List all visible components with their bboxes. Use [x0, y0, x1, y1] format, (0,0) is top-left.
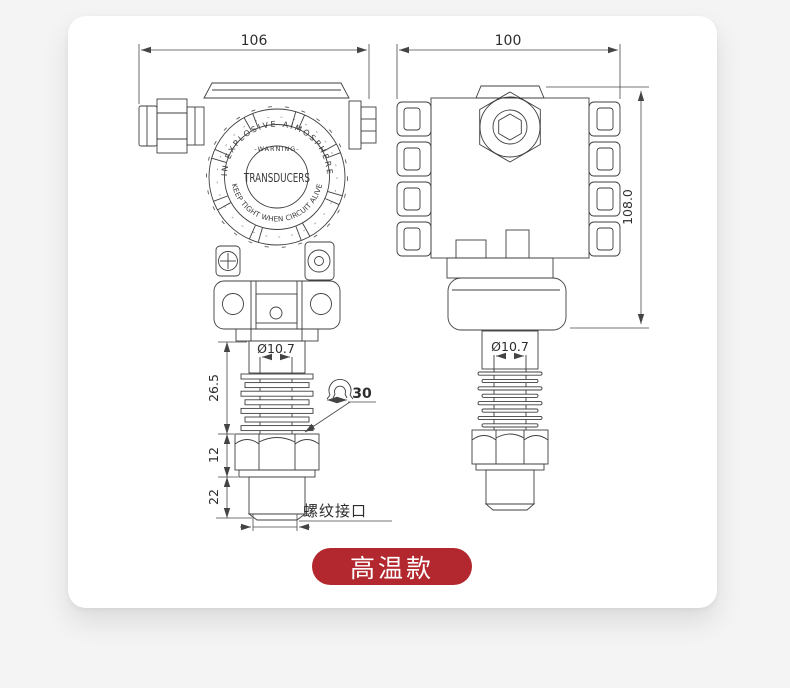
front-hex-dim: 12	[206, 447, 221, 463]
cable-gland	[139, 99, 204, 153]
front-fins-dim: 26.5	[206, 374, 221, 402]
side-height-dim: 108.0	[620, 189, 635, 225]
side-cooling-fins	[478, 372, 542, 427]
flange-ribs-left	[397, 102, 431, 256]
cooling-fins	[241, 374, 313, 431]
face-center-text: TRANSDUCERS	[243, 171, 310, 185]
side-body	[431, 98, 589, 258]
high-temperature-model-badge: 高温款	[312, 548, 472, 585]
hex-width-dim: 30	[352, 386, 372, 402]
side-width-dim: 100	[495, 33, 522, 49]
front-thread-dim: 22	[206, 489, 221, 505]
side-probe-diameter: Ø10.7	[491, 339, 529, 354]
side-thread-connector	[486, 470, 534, 510]
screw-tabs	[216, 242, 334, 280]
side-bracket-block	[447, 258, 566, 330]
flange-ribs-right	[589, 102, 620, 256]
thread-connector	[249, 477, 305, 520]
dimension-labels: 106 100 108.0 26.5 12 22 Ø10.7 Ø10.7 30 …	[206, 33, 635, 520]
wrench-icon	[327, 379, 353, 399]
top-cap	[204, 83, 349, 98]
side-plug	[349, 101, 376, 149]
thread-port-label: 螺纹接口	[303, 502, 367, 520]
hex-plug	[480, 92, 541, 162]
front-probe-diameter: Ø10.7	[257, 341, 295, 356]
face-warning-text: -WARNING-	[254, 145, 299, 153]
side-hex-nut	[472, 430, 548, 470]
badge-label: 高温款	[350, 549, 434, 585]
side-view-outline	[397, 86, 620, 510]
front-width-dim: 106	[241, 33, 268, 49]
mounting-bracket	[214, 281, 340, 341]
hex-nut	[235, 434, 319, 477]
